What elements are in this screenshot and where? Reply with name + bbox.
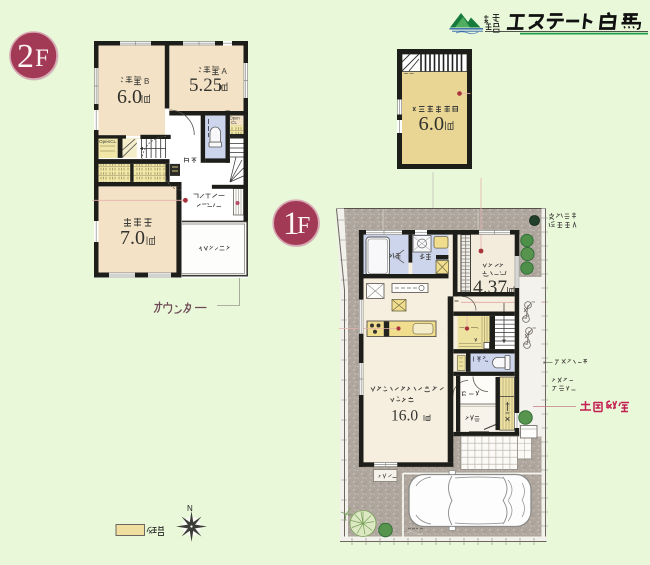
svg-text:N: N bbox=[187, 504, 193, 513]
svg-text:16.0: 16.0 bbox=[391, 408, 418, 425]
svg-text:A: A bbox=[222, 67, 228, 76]
svg-text:7.0: 7.0 bbox=[120, 227, 145, 249]
svg-text:2: 2 bbox=[17, 38, 34, 75]
svg-text:B: B bbox=[144, 77, 149, 86]
svg-text:F: F bbox=[297, 213, 310, 239]
svg-text:F: F bbox=[35, 45, 49, 72]
svg-text:OpenCL: OpenCL bbox=[99, 139, 117, 144]
svg-text:5.25: 5.25 bbox=[189, 75, 222, 96]
svg-text:CL: CL bbox=[231, 120, 237, 125]
svg-text:6.0: 6.0 bbox=[419, 113, 445, 135]
svg-text:6.0: 6.0 bbox=[117, 86, 142, 108]
